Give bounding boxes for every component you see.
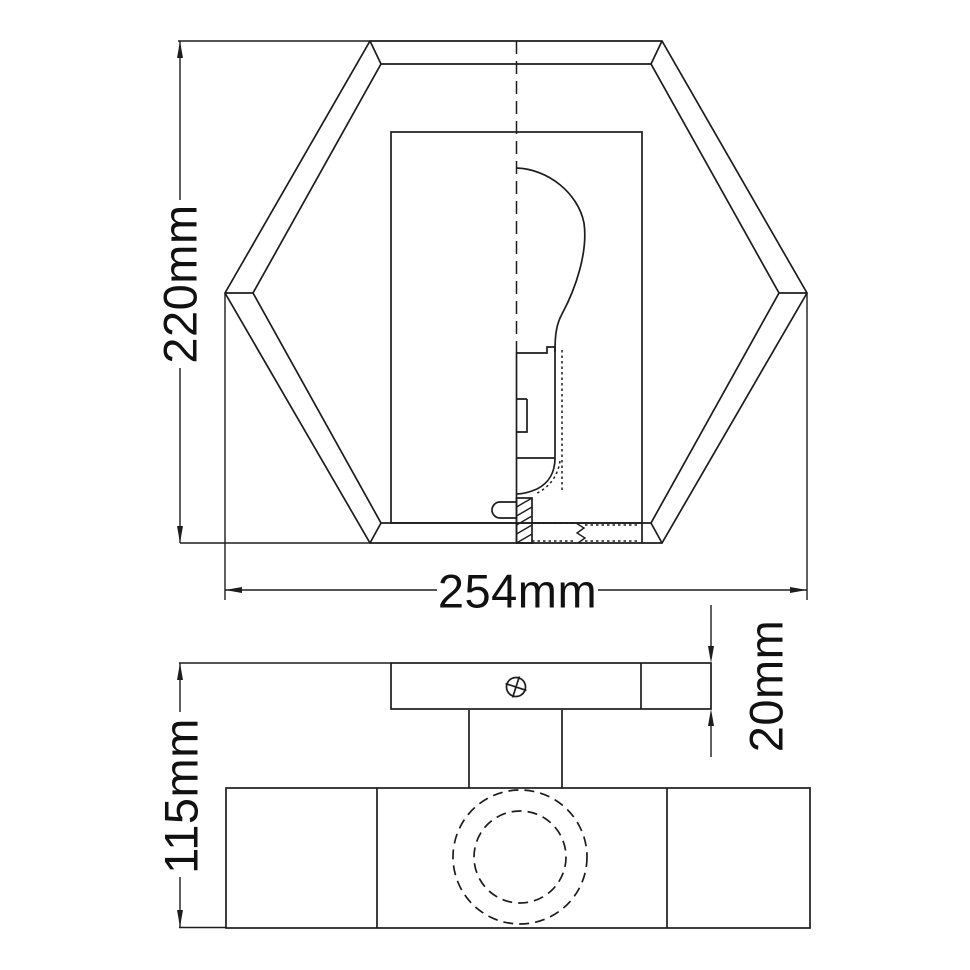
socket-switch-notch xyxy=(517,399,528,432)
width-dimension-label: 254mm xyxy=(438,565,597,618)
mount-hidden-band xyxy=(532,523,638,543)
socket-skirt xyxy=(517,458,556,494)
arrow-up xyxy=(177,41,183,58)
arrow-down xyxy=(177,910,183,927)
dimension-height-220: 220mm xyxy=(154,41,371,543)
dimension-plate-thickness-20: 20mm xyxy=(708,605,793,757)
plate-thickness-dimension-label: 20mm xyxy=(740,620,793,753)
arrow-up xyxy=(177,663,183,680)
arrow-up xyxy=(708,709,714,726)
bulb-profile xyxy=(517,168,585,352)
arrow-right xyxy=(790,587,807,593)
front-view-hexagon-shade: 220mm 254mm xyxy=(154,41,808,618)
side-view-fixture: 115mm 20mm xyxy=(155,605,811,928)
drawing-canvas: 220mm 254mm xyxy=(0,0,970,970)
mounting-plate xyxy=(391,663,711,709)
mount-clip xyxy=(492,502,517,518)
hidden-opening-inner-circle xyxy=(474,811,566,903)
arrow-left xyxy=(225,587,242,593)
mount-hatched-block xyxy=(517,498,533,543)
dimension-body-height-115: 115mm xyxy=(155,663,227,928)
dimension-drawing-svg: 220mm 254mm xyxy=(0,0,970,970)
lamp-socket xyxy=(517,347,563,494)
band-break-zigzag xyxy=(576,523,585,543)
body-height-dimension-label: 115mm xyxy=(155,718,208,874)
screw-head-icon xyxy=(502,673,530,701)
fixture-body xyxy=(226,788,810,928)
arrow-down xyxy=(708,646,714,663)
hidden-opening-outer-circle xyxy=(453,790,587,924)
height-dimension-label: 220mm xyxy=(154,204,207,363)
connecting-stem xyxy=(469,710,562,788)
arrow-down xyxy=(177,526,183,543)
